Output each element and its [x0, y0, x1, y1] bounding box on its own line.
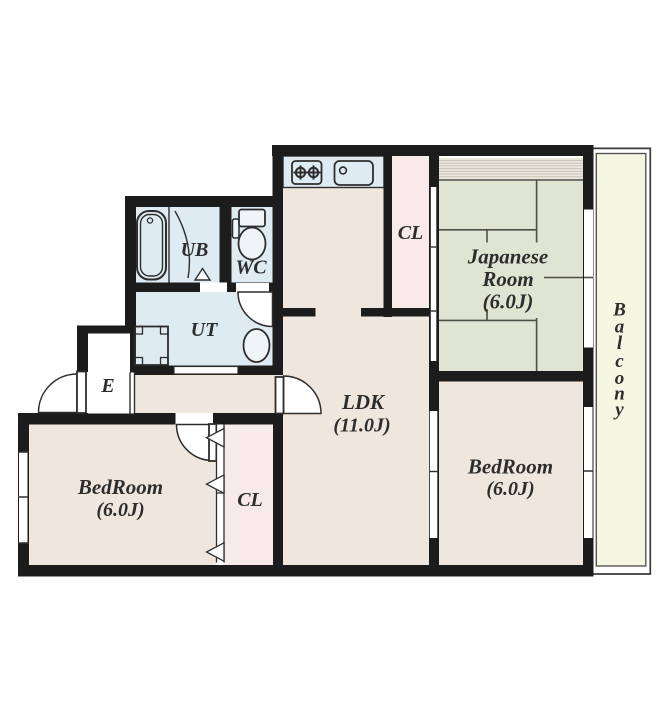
- svg-text:CL: CL: [237, 489, 263, 511]
- svg-text:Room: Room: [481, 267, 533, 291]
- svg-text:(6.0J): (6.0J): [483, 290, 534, 314]
- svg-text:LDK: LDK: [341, 390, 386, 414]
- svg-text:E: E: [100, 375, 114, 397]
- svg-text:UB: UB: [181, 239, 209, 261]
- svg-text:(6.0J): (6.0J): [486, 478, 534, 500]
- svg-text:WC: WC: [235, 257, 267, 279]
- svg-text:BedRoom: BedRoom: [77, 475, 163, 499]
- svg-text:UT: UT: [191, 319, 218, 341]
- svg-text:y: y: [613, 399, 624, 420]
- svg-text:(11.0J): (11.0J): [333, 415, 390, 437]
- svg-text:BedRoom: BedRoom: [467, 455, 553, 479]
- svg-text:Japanese: Japanese: [467, 245, 549, 269]
- svg-text:(6.0J): (6.0J): [96, 499, 144, 521]
- svg-text:CL: CL: [398, 222, 424, 244]
